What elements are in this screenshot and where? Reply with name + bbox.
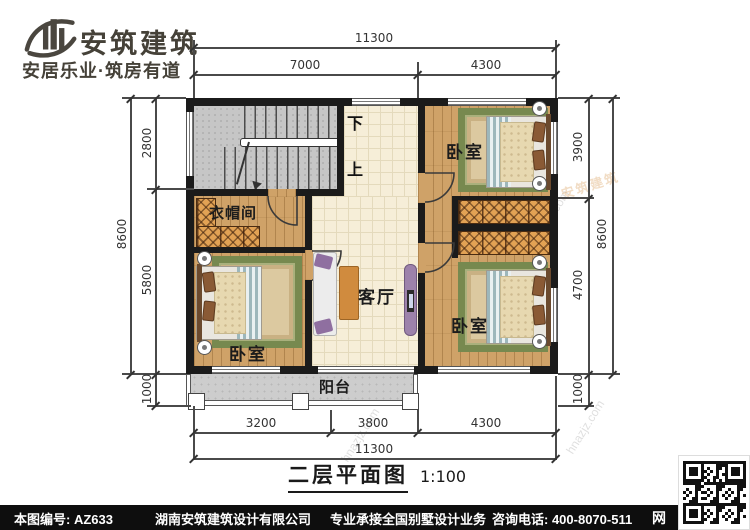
dim-extension bbox=[555, 376, 557, 460]
bedroom-tr-label: 卧室 bbox=[442, 138, 488, 163]
bed-pillow bbox=[532, 304, 546, 325]
footer-company: 湖南安筑建筑设计有限公司 bbox=[155, 509, 311, 528]
tv-screen bbox=[409, 294, 413, 308]
bedroom-tr-wardrobe bbox=[458, 200, 550, 224]
window bbox=[352, 98, 400, 106]
balcony-label: 阳台 bbox=[305, 376, 365, 397]
dim-top-total: 11300 bbox=[344, 31, 404, 45]
window bbox=[438, 366, 530, 374]
cloakroom-door bbox=[268, 196, 297, 225]
bedroom-br-wardrobe bbox=[458, 231, 550, 255]
wall bbox=[305, 196, 312, 250]
window bbox=[186, 112, 194, 176]
balcony-column bbox=[188, 393, 205, 410]
living-room-label: 客厅 bbox=[352, 283, 402, 308]
wall bbox=[186, 189, 268, 196]
stair-handrail bbox=[240, 138, 340, 147]
footer-service: 专业承接全国别墅设计业务 bbox=[330, 509, 486, 528]
nightstand bbox=[532, 334, 547, 349]
window bbox=[448, 98, 526, 106]
wall bbox=[452, 224, 552, 231]
bed-pillow bbox=[202, 300, 216, 321]
dim-left-seg: 2800 bbox=[140, 113, 154, 173]
dim-line bbox=[193, 47, 556, 49]
stairs-up-label: 上 bbox=[347, 156, 363, 180]
dim-right-seg: 4700 bbox=[571, 255, 585, 315]
bed-quilt bbox=[214, 272, 246, 334]
nightstand bbox=[532, 255, 547, 270]
cloakroom-label: 衣帽间 bbox=[198, 202, 268, 223]
balcony-sliding-door bbox=[318, 366, 414, 374]
dim-top-seg: 7000 bbox=[275, 58, 335, 72]
bed-quilt bbox=[500, 122, 534, 182]
dim-bottom-seg: 3200 bbox=[231, 416, 291, 430]
floor-plan-page: 安筑建筑 安居乐业·筑房有道 hnazjz.com hnazjz.com hna… bbox=[0, 0, 750, 530]
bedroom-tr-door bbox=[425, 173, 454, 202]
dim-line bbox=[193, 74, 556, 76]
bed-headboard bbox=[546, 114, 551, 190]
nightstand bbox=[197, 340, 212, 355]
dim-left-seg: 1000 bbox=[140, 359, 154, 419]
nightstand bbox=[197, 251, 212, 266]
wall bbox=[452, 196, 552, 200]
window bbox=[550, 288, 558, 342]
dim-tick bbox=[608, 370, 617, 379]
qr-code bbox=[678, 455, 750, 530]
wall bbox=[296, 189, 344, 196]
cloakroom-wardrobe bbox=[196, 226, 260, 248]
footer-phone: 咨询电话: 400-8070-511 bbox=[492, 509, 632, 528]
drawing-scale: 1:100 bbox=[420, 467, 466, 486]
bed-headboard bbox=[197, 264, 202, 342]
dim-tick bbox=[551, 454, 560, 463]
window bbox=[212, 366, 280, 374]
bedroom-br-door bbox=[425, 243, 454, 272]
dim-line bbox=[612, 98, 614, 374]
drawing-title: 二层平面图 1:100 bbox=[288, 459, 466, 493]
dim-line bbox=[588, 98, 590, 406]
footer-bar: 本图编号: AZ633 湖南安筑建筑设计有限公司 专业承接全国别墅设计业务 咨询… bbox=[0, 505, 750, 530]
window bbox=[550, 122, 558, 174]
dim-line bbox=[130, 98, 132, 374]
wall bbox=[194, 247, 305, 253]
nightstand bbox=[532, 176, 547, 191]
dim-bottom-seg: 4300 bbox=[456, 416, 516, 430]
company-tagline: 安居乐业·筑房有道 bbox=[22, 57, 181, 83]
dim-tick bbox=[126, 370, 135, 379]
stair-treads-upper bbox=[244, 100, 340, 140]
dim-right-seg: 3900 bbox=[571, 117, 585, 177]
dim-line bbox=[155, 98, 157, 406]
footer-web-label: 网 bbox=[652, 508, 666, 528]
dim-left-total: 8600 bbox=[115, 204, 129, 264]
dim-extension bbox=[417, 62, 419, 98]
bedroom-br-label: 卧室 bbox=[447, 312, 493, 337]
drawing-number: 本图编号: AZ633 bbox=[14, 509, 113, 528]
wall bbox=[418, 203, 425, 243]
dim-left-seg: 5800 bbox=[140, 250, 154, 310]
dim-line bbox=[193, 432, 556, 434]
dim-right-total: 8600 bbox=[595, 204, 609, 264]
nightstand bbox=[532, 101, 547, 116]
wall bbox=[418, 98, 425, 173]
balcony-column bbox=[402, 393, 419, 410]
bed-quilt bbox=[500, 276, 534, 338]
dim-right-seg: 1000 bbox=[571, 359, 585, 419]
dim-top-seg: 4300 bbox=[456, 58, 516, 72]
bed-pillow bbox=[532, 149, 546, 170]
drawing-title-text: 二层平面图 bbox=[288, 459, 408, 493]
qr-code-pattern bbox=[683, 461, 746, 524]
wall bbox=[337, 98, 344, 196]
wall bbox=[305, 280, 312, 368]
dim-bottom-seg: 3800 bbox=[343, 416, 403, 430]
wall bbox=[418, 273, 425, 368]
company-name: 安筑建筑 bbox=[80, 22, 200, 61]
bedroom-bl-label: 卧室 bbox=[225, 340, 271, 365]
bed-pillow bbox=[202, 271, 217, 292]
stairs-down-label: 下 bbox=[347, 110, 363, 134]
company-logo-icon bbox=[24, 12, 78, 62]
dim-bottom-total: 11300 bbox=[344, 442, 404, 456]
bed-headboard bbox=[546, 268, 551, 346]
